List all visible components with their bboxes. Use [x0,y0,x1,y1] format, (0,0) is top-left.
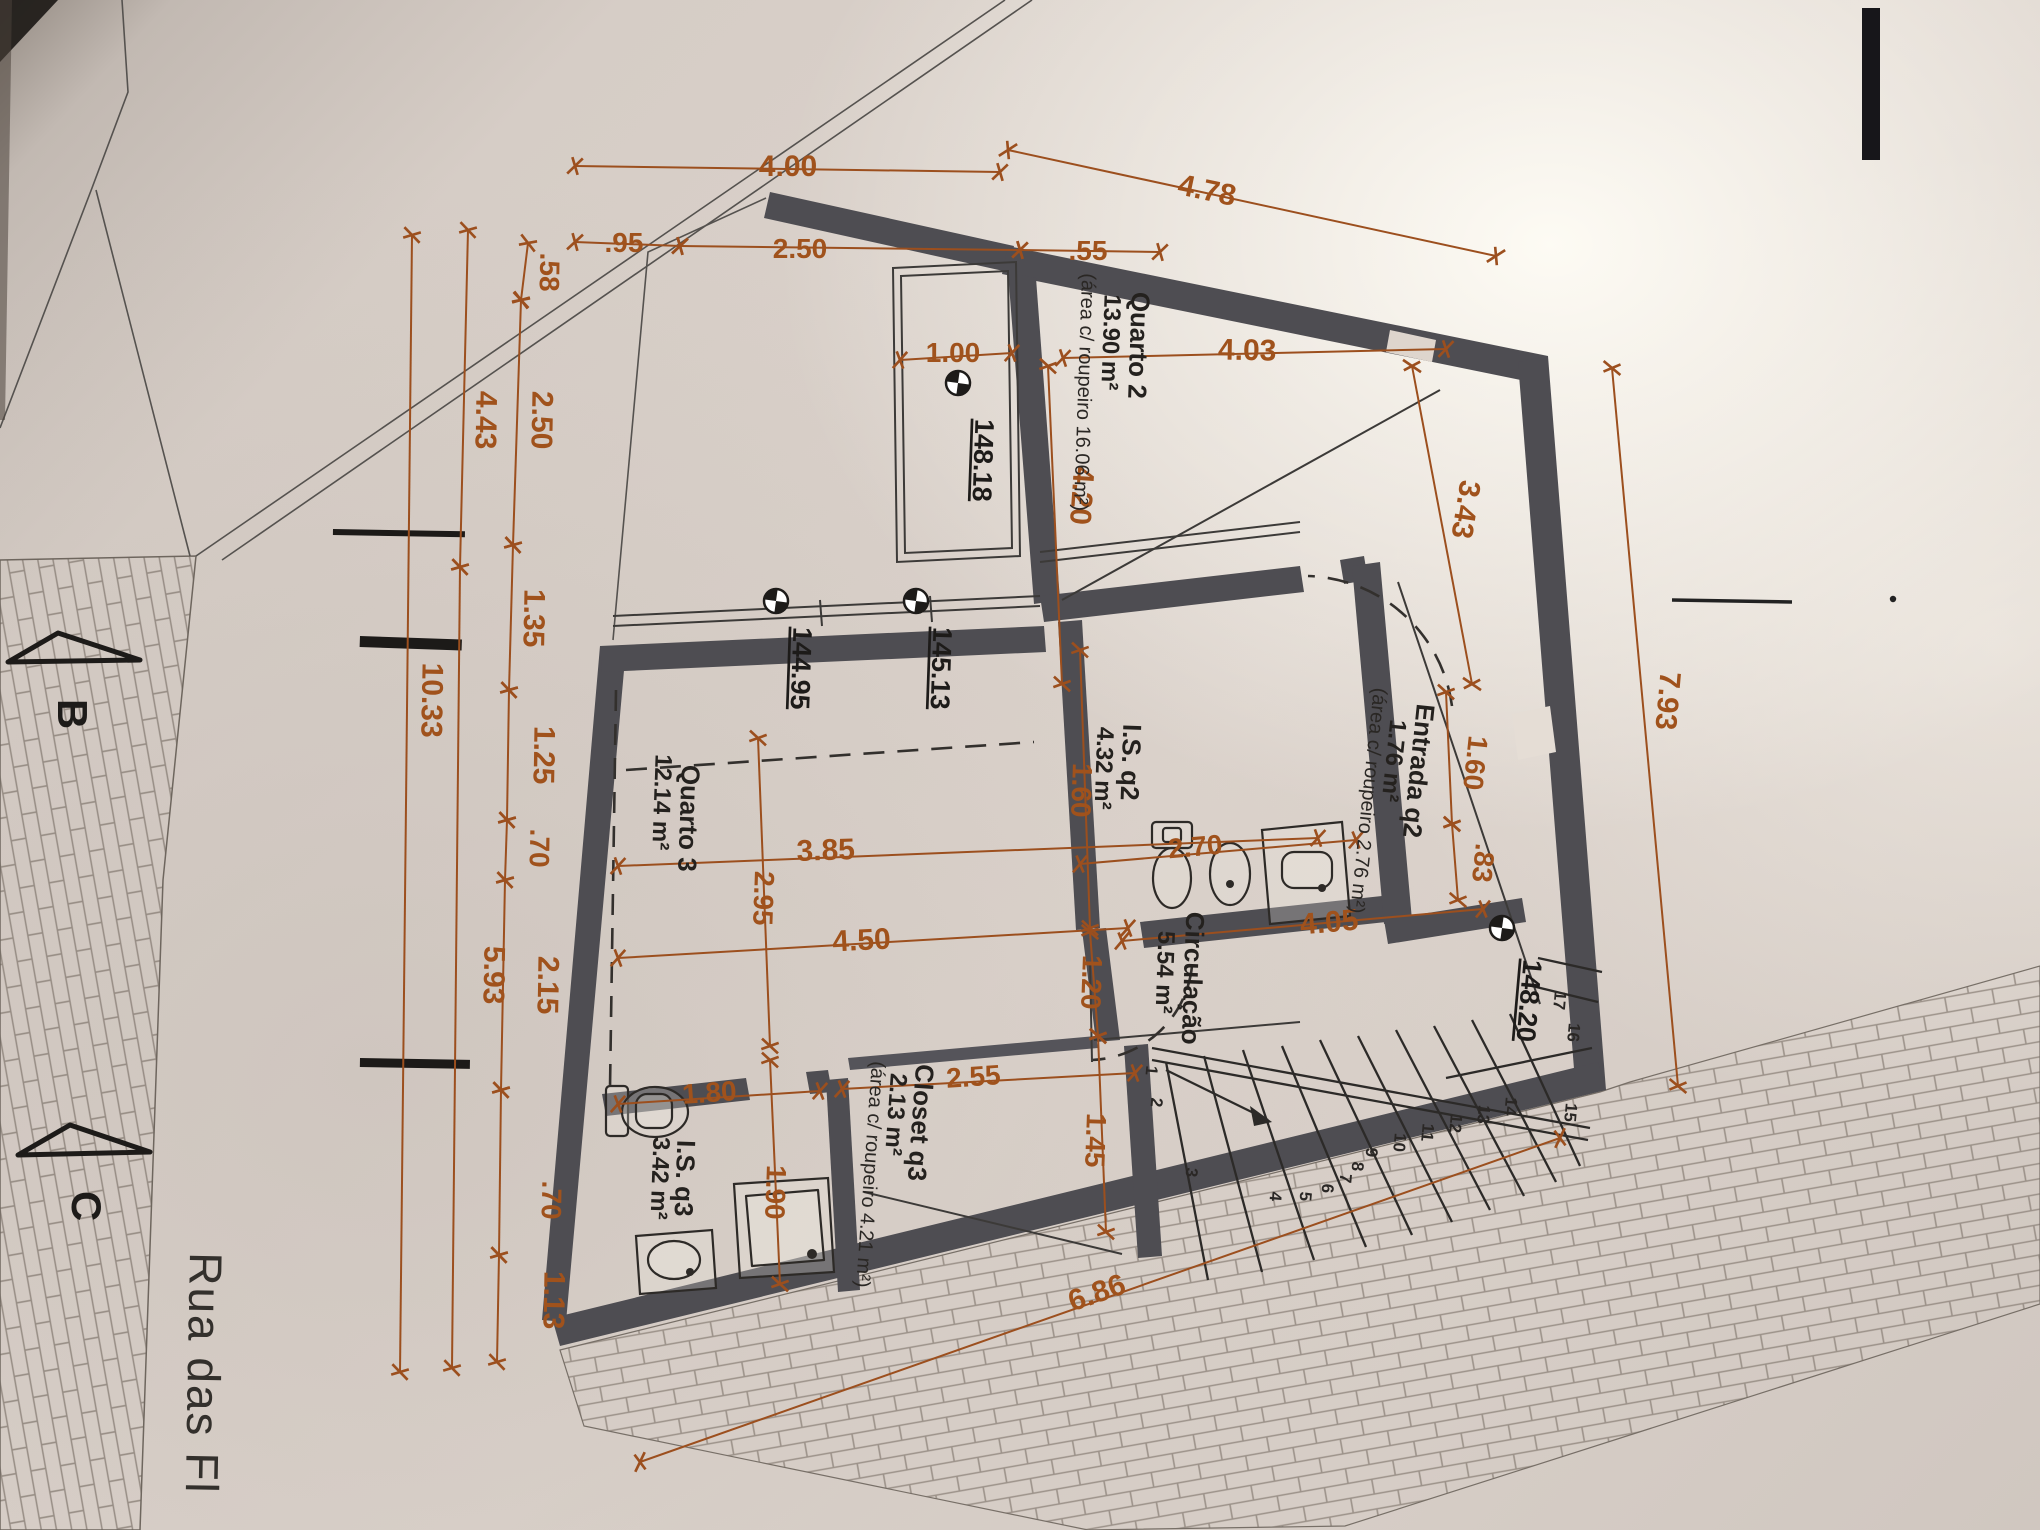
dim-3.85: 3.85 [796,833,856,868]
svg-text:9: 9 [1362,1147,1382,1158]
shower-drain-isq3 [807,1249,817,1259]
svg-text:3: 3 [1182,1167,1202,1178]
glazed-wall-2 [613,606,1040,626]
adjacent-frame-mark [1862,8,1880,160]
label-isq2: I.S. q2 [1115,724,1148,802]
label-quarto2: Quarto 2 [1122,291,1156,399]
neighbor-wall-stub-3 [360,1058,470,1069]
dim-1.80: 1.80 [681,1075,738,1110]
dim-.70-b: .70 [536,1180,568,1219]
svg-text:1: 1 [1142,1065,1162,1076]
svg-text:148.20: 148.20 [1510,958,1547,1043]
sink-isq2 [1282,852,1332,888]
dot-mark [1890,596,1896,602]
dim-5.93: 5.93 [476,946,510,1005]
wall-terrace-quarto3 [600,626,1046,672]
dim-2.55: 2.55 [945,1059,1002,1094]
svg-text:144.95: 144.95 [785,627,818,711]
dim-.55: .55 [1069,235,1108,266]
level-marker-148.18: 148.18 [944,369,999,502]
svg-text:10: 10 [1389,1132,1410,1153]
area-isq2: 4.32 m² [1089,726,1119,810]
svg-text:11: 11 [1417,1123,1437,1143]
street-name: Rua das Fl [176,1252,232,1495]
sink-drain-isq2 [1318,884,1326,892]
dim-1.13: 1.13 [536,1271,570,1330]
label-quarto3: Quarto 3 [672,764,706,872]
dim-.70-a: .70 [524,828,556,867]
level-marker-148.20: 148.20 [1488,914,1547,1043]
svg-text:6: 6 [1318,1183,1338,1194]
section-letter-c: C [63,1191,110,1221]
glazed-wall-1 [613,596,1040,616]
dim-1.60-entrada: 1.60 [1457,734,1494,791]
svg-text:2: 2 [1147,1097,1167,1108]
dim-1.25: 1.25 [526,726,560,785]
balcony-outline-outer [893,262,1020,562]
svg-text:5: 5 [1296,1191,1316,1202]
plot-boundary-lines [0,0,1032,640]
dim-4.50: 4.50 [831,923,891,959]
area-circulacao: 5.54 m² [1150,930,1180,1014]
dim-4.43: 4.43 [468,391,502,450]
dim-10.33: 10.33 [414,662,448,738]
dim-2.15: 2.15 [530,956,564,1015]
area-quarto3: 12.14 m² [646,754,676,851]
dim-1.45: 1.45 [1079,1113,1112,1169]
road-hatch-strip [0,556,196,1530]
dim-1.00: 1.00 [926,337,981,368]
svg-text:13: 13 [1473,1104,1494,1125]
entrada-niche [1512,706,1556,760]
floor-plan-drawing: 4.00 .95 2.50 .55 4.78 1.00 4.03 3.85 4.… [0,0,2040,1530]
area-isq3: 3.42 m² [645,1136,675,1220]
balcony-outline-inner [901,271,1012,553]
dim-1.35: 1.35 [516,589,550,648]
mullion-2 [930,596,932,622]
svg-text:145.13: 145.13 [925,627,958,711]
dim-.83: .83 [1466,842,1501,884]
toilet-lid-isq3 [636,1094,672,1128]
svg-text:16: 16 [1563,1022,1584,1043]
svg-text:12: 12 [1445,1113,1466,1134]
bidet-drain-isq2 [1226,880,1234,888]
wall-quarto2-left [1008,272,1060,604]
paper-edge [0,0,12,420]
floor-plan-photo: 4.00 .95 2.50 .55 4.78 1.00 4.03 3.85 4.… [0,0,2040,1530]
svg-text:148.18: 148.18 [967,419,1000,503]
dim-2.95: 2.95 [747,871,780,927]
dim-1.90: 1.90 [759,1165,792,1221]
dim-2.50-top: 2.50 [773,233,828,264]
label-circulacao: Circulação [1176,911,1211,1045]
dim-1.20: 1.20 [1075,955,1108,1011]
page-artifacts [0,0,1896,1069]
svg-text:8: 8 [1348,1161,1368,1172]
dim-7.93: 7.93 [1648,670,1686,731]
svg-text:7: 7 [1336,1173,1356,1184]
dim-2.50-left: 2.50 [524,391,558,450]
dim-.95: .95 [605,227,644,258]
dim-.58: .58 [534,252,566,291]
mullion-1 [820,600,822,626]
svg-text:17: 17 [1549,990,1570,1011]
neighbor-wall-stub-2 [360,636,462,651]
fold-mark [1672,600,1792,602]
dim-4.00: 4.00 [759,150,817,183]
svg-text:14: 14 [1500,1096,1521,1117]
dim-4.78: 4.78 [1175,168,1239,212]
dim-4.03: 4.03 [1218,333,1277,367]
dim-2.70: 2.70 [1167,829,1224,865]
q2-diagonal [1062,390,1440,600]
area-quarto2: 13.90 m² [1095,294,1125,391]
wall-bath-top [1040,566,1304,622]
section-letter-b: B [49,699,96,729]
basin-drain-isq3 [686,1268,694,1276]
dim-3.43: 3.43 [1445,478,1487,541]
svg-text:15: 15 [1560,1102,1581,1123]
neighbor-wall-stub-1 [333,529,465,537]
